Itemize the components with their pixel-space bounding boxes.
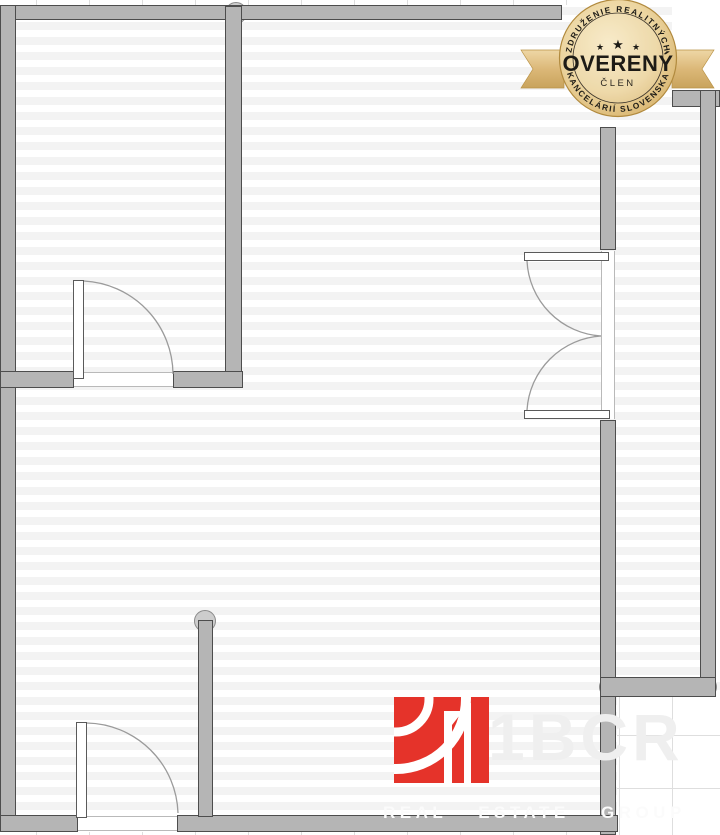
entry-stub-wall xyxy=(198,620,213,817)
left-wall xyxy=(0,5,16,832)
door-swing-arc xyxy=(87,723,178,813)
ribbon-right xyxy=(672,50,714,88)
door-leaf-balcony-upper xyxy=(524,252,609,261)
room-divider-wall xyxy=(225,6,242,388)
bottom-wall-left xyxy=(0,815,78,832)
door-swing-arc xyxy=(527,261,601,336)
balcony-bottom-wall xyxy=(600,677,716,697)
logo-slot-2 xyxy=(464,703,471,783)
door-opening-top-room xyxy=(73,372,174,387)
realestate-logo xyxy=(394,697,489,783)
badge-subtitle: ČLEN xyxy=(600,78,635,89)
door-swing-arc xyxy=(527,336,601,410)
badge-title: OVERENÝ xyxy=(562,51,673,76)
tagline-watermark: REAL ESTATE GROUP xyxy=(383,803,686,823)
floorplan-canvas: 1BCR REAL ESTATE GROUP ZDRUŽENIE REALITN… xyxy=(0,0,720,835)
outside-right-sliver xyxy=(716,107,720,677)
door-opening-balcony xyxy=(601,251,615,419)
logo-slot-1 xyxy=(444,711,452,783)
mid-wall-right xyxy=(173,371,243,388)
door-swing-arc xyxy=(84,281,173,374)
ribbon-left xyxy=(521,50,564,88)
door-leaf-top-room xyxy=(73,280,84,379)
balcony-right-wall xyxy=(700,90,716,697)
right-wall-upper xyxy=(600,127,616,250)
certification-badge: ZDRUŽENIE REALITNÝCH ★ ★ ★ OVERENÝ ČLEN … xyxy=(518,0,718,126)
door-leaf-entry xyxy=(76,722,87,818)
badge-star-center: ★ xyxy=(612,37,624,52)
mid-wall-left xyxy=(0,371,74,388)
door-opening-entry xyxy=(77,816,178,831)
door-leaf-balcony-lower xyxy=(524,410,610,419)
top-wall xyxy=(0,5,562,20)
brand-watermark: 1BCR xyxy=(488,704,684,770)
